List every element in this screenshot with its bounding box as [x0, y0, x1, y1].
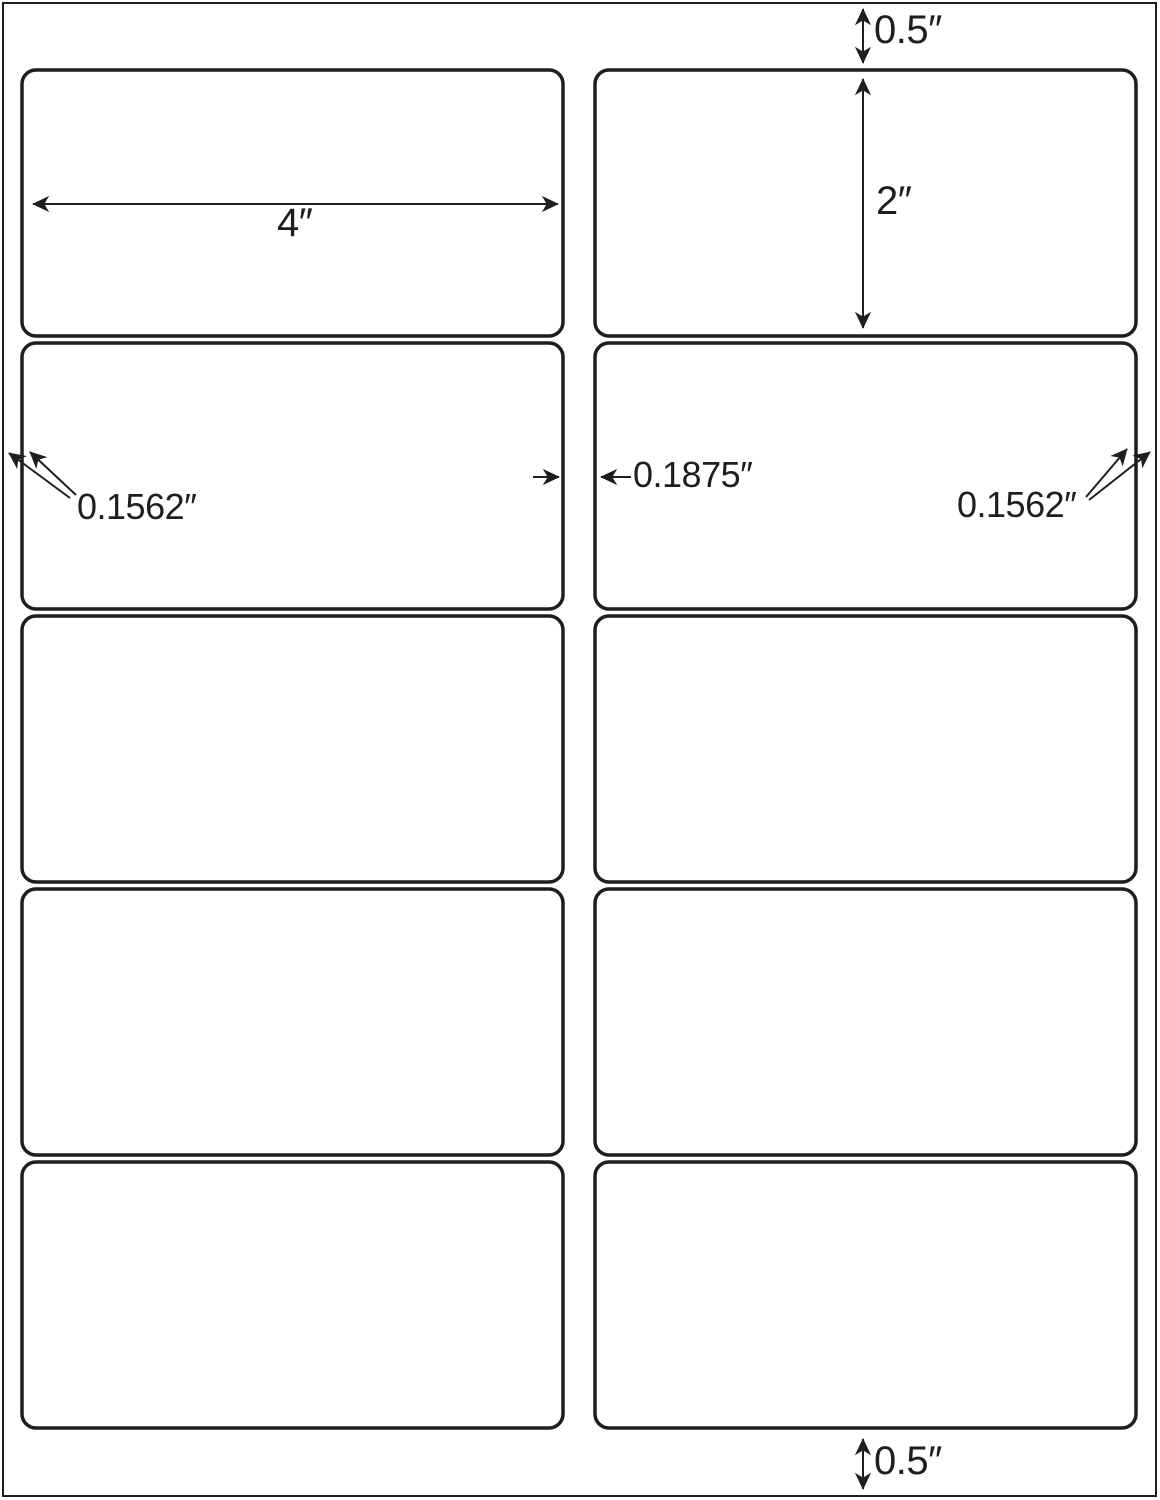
- left-margin-dimension: 0.1562″: [77, 489, 196, 525]
- label-cell-r3c1: [22, 616, 563, 882]
- bottom-margin-dimension: 0.5″: [874, 1441, 942, 1481]
- column-gap-dimension: 0.1875″: [633, 457, 752, 493]
- label-cell-r4c1: [22, 889, 563, 1155]
- label-cell-r5c1: [22, 1162, 563, 1428]
- label-sheet-diagram: 0.5″ 2″ 4″ 0.1562″ 0.1875″ 0.1562″ 0.5″: [0, 0, 1160, 1500]
- label-cell-r5c2: [595, 1162, 1136, 1428]
- label-height-dimension: 2″: [876, 181, 911, 221]
- label-cell-r4c2: [595, 889, 1136, 1155]
- label-cell-r2c1: [22, 343, 563, 609]
- label-cell-r1c2: [595, 70, 1136, 336]
- sheet-outline: [3, 3, 1156, 1496]
- label-width-dimension: 4″: [277, 203, 312, 243]
- right-margin-dimension: 0.1562″: [957, 487, 1076, 523]
- sheet-drawing: [0, 0, 1160, 1500]
- right-margin-arrow-inner: [1086, 449, 1127, 497]
- top-margin-dimension: 0.5″: [874, 10, 942, 50]
- label-cell-r3c2: [595, 616, 1136, 882]
- label-grid: [22, 70, 1136, 1428]
- dimension-arrows: [9, 9, 1150, 1489]
